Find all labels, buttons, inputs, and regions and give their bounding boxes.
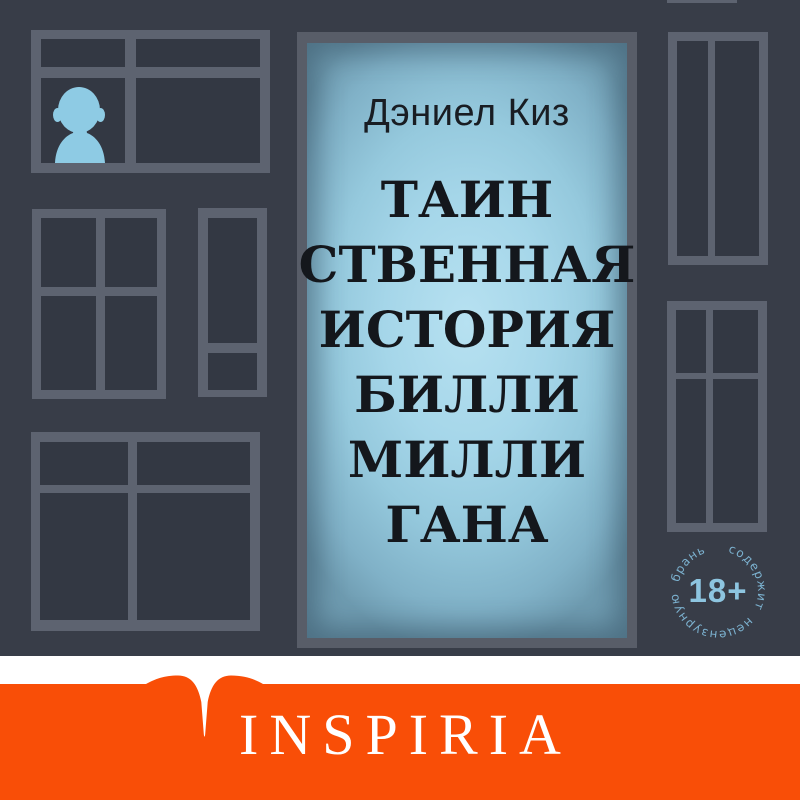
publisher-logo-text: INSPIRIA	[0, 706, 800, 764]
window-pane	[137, 442, 250, 485]
window-pane	[41, 218, 96, 287]
window-frame-top-right	[668, 32, 768, 265]
window-frame-bottom-left	[31, 432, 260, 631]
window-pane	[41, 39, 125, 67]
window-pane	[105, 296, 157, 390]
window-pane	[713, 379, 758, 523]
book-title: ТАИН СТВЕННАЯ ИСТОРИЯ БИЛЛИ МИЛЛИ ГАНА	[297, 167, 637, 557]
window-frame-top-left	[31, 30, 270, 173]
window-pane	[136, 78, 260, 163]
window-frame-left-middle	[32, 209, 166, 399]
window-frame-middle-right	[667, 301, 767, 532]
title-line: ТАИН	[297, 167, 637, 232]
window-pane	[40, 442, 128, 485]
window-frame-top-sliver	[667, 0, 737, 3]
window-pane	[713, 310, 758, 373]
audiobook-cover: Дэниел Киз ТАИН СТВЕННАЯ ИСТОРИЯ БИЛЛИ М…	[0, 0, 800, 800]
window-pane	[676, 310, 706, 373]
window-pane	[715, 41, 759, 256]
window-pane	[208, 218, 257, 343]
window-pane	[136, 39, 260, 67]
person-silhouette-icon	[41, 78, 125, 163]
window-pane	[677, 41, 708, 256]
window-pane	[208, 353, 257, 390]
title-line: ГАНА	[297, 492, 637, 557]
author-name: Дэниел Киз	[297, 94, 637, 132]
window-pane	[41, 296, 96, 390]
window-pane-with-person	[41, 78, 125, 163]
age-badge-label: 18+	[689, 572, 748, 609]
window-pane	[40, 493, 128, 620]
title-line: ИСТОРИЯ	[297, 297, 637, 362]
age-restriction-badge: содержит нецензурную брань 18+	[653, 526, 783, 656]
title-line: МИЛЛИ	[297, 427, 637, 492]
window-frame-narrow	[198, 208, 267, 397]
title-line: БИЛЛИ	[297, 362, 637, 427]
door-panel: Дэниел Киз ТАИН СТВЕННАЯ ИСТОРИЯ БИЛЛИ М…	[297, 32, 637, 648]
window-pane	[137, 493, 250, 620]
title-line: СТВЕННАЯ	[297, 232, 637, 297]
window-pane	[676, 379, 706, 523]
window-pane	[105, 218, 157, 287]
